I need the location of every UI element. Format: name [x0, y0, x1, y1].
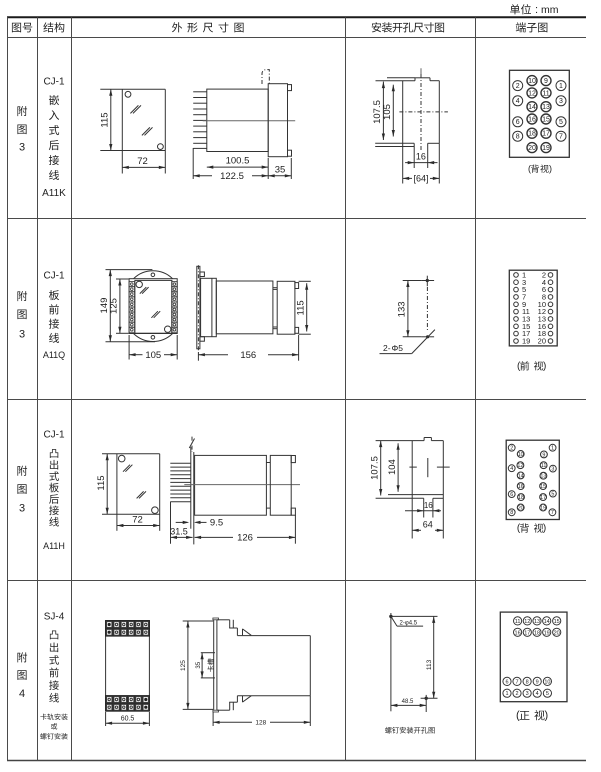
svg-text:15: 15 — [554, 619, 560, 625]
svg-text:9: 9 — [544, 78, 548, 85]
svg-text:): ) — [543, 361, 546, 372]
svg-text:9: 9 — [542, 452, 545, 458]
svg-text:CJ-1: CJ-1 — [43, 430, 65, 441]
svg-text:4: 4 — [516, 98, 520, 105]
svg-text:(: ( — [517, 361, 521, 372]
svg-text:6: 6 — [505, 679, 508, 685]
svg-text:8: 8 — [526, 679, 529, 685]
svg-text:125: 125 — [180, 660, 187, 671]
svg-text:20: 20 — [538, 337, 546, 346]
svg-text:15: 15 — [542, 116, 550, 123]
svg-text:): ) — [549, 164, 552, 174]
svg-text:105: 105 — [382, 104, 393, 120]
svg-text:126: 126 — [237, 533, 253, 544]
svg-text:17: 17 — [524, 630, 530, 636]
svg-text:7: 7 — [515, 679, 518, 685]
svg-text:5: 5 — [551, 492, 554, 498]
svg-text:19: 19 — [540, 505, 546, 511]
svg-text:15: 15 — [540, 484, 546, 490]
svg-text:): ) — [544, 710, 548, 722]
svg-text:48.5: 48.5 — [402, 699, 414, 705]
svg-text:107.5: 107.5 — [369, 456, 380, 480]
svg-text:1: 1 — [559, 83, 563, 90]
svg-text:9.5: 9.5 — [210, 518, 223, 529]
svg-text:113: 113 — [426, 659, 433, 670]
svg-text:4: 4 — [536, 691, 539, 697]
svg-text:CJ-1: CJ-1 — [43, 77, 65, 88]
svg-text:16: 16 — [424, 501, 433, 510]
svg-text:2: 2 — [515, 691, 518, 697]
svg-text:5: 5 — [546, 691, 549, 697]
svg-text:16: 16 — [518, 484, 524, 490]
svg-text:A11H: A11H — [43, 541, 65, 551]
svg-text:11: 11 — [541, 463, 547, 469]
svg-text:3: 3 — [19, 503, 25, 515]
svg-text:64: 64 — [423, 520, 433, 530]
svg-text:115: 115 — [295, 300, 306, 315]
svg-text:SJ-4: SJ-4 — [44, 612, 65, 623]
svg-text:10: 10 — [544, 679, 550, 685]
svg-text:16: 16 — [416, 152, 426, 162]
svg-text:3: 3 — [551, 467, 554, 473]
svg-text:35: 35 — [275, 164, 286, 175]
svg-text:18: 18 — [528, 131, 536, 138]
svg-text:133: 133 — [397, 301, 408, 317]
svg-text:115: 115 — [99, 112, 110, 127]
svg-text:19: 19 — [542, 145, 550, 152]
svg-text:2-φ4.5: 2-φ4.5 — [400, 620, 418, 626]
svg-text:14: 14 — [528, 104, 536, 111]
svg-text:16: 16 — [515, 630, 521, 636]
svg-text:A11K: A11K — [42, 188, 66, 199]
svg-text:1: 1 — [505, 691, 508, 697]
svg-text:(: ( — [528, 164, 531, 174]
svg-text:14: 14 — [518, 473, 524, 479]
svg-text:12: 12 — [528, 90, 536, 97]
svg-text:18: 18 — [534, 630, 540, 636]
svg-text:122.5: 122.5 — [220, 171, 244, 182]
svg-text:(: ( — [517, 523, 521, 534]
svg-text:mm: mm — [541, 4, 559, 16]
svg-text:5: 5 — [559, 119, 563, 126]
svg-text:128: 128 — [255, 720, 266, 727]
svg-text:8: 8 — [516, 134, 520, 141]
svg-text:10: 10 — [518, 452, 524, 458]
svg-text:104: 104 — [387, 459, 398, 475]
svg-text:20: 20 — [518, 505, 524, 511]
svg-text:2: 2 — [516, 83, 520, 90]
svg-text:7: 7 — [559, 134, 563, 141]
svg-text:10: 10 — [528, 78, 536, 85]
svg-text:72: 72 — [137, 156, 148, 167]
svg-text::: : — [535, 4, 538, 16]
svg-text:31.5: 31.5 — [170, 526, 188, 536]
svg-text:100.5: 100.5 — [226, 155, 250, 166]
svg-text:3: 3 — [559, 98, 563, 105]
svg-text:12: 12 — [524, 619, 530, 625]
svg-text:17: 17 — [542, 131, 550, 138]
svg-text:9: 9 — [536, 679, 539, 685]
svg-text:12: 12 — [517, 463, 523, 469]
svg-text:16: 16 — [528, 116, 536, 123]
svg-text:60.5: 60.5 — [121, 716, 135, 723]
svg-text:4: 4 — [19, 688, 25, 700]
svg-text:7: 7 — [551, 510, 554, 516]
svg-text:6: 6 — [516, 119, 520, 126]
svg-text:156: 156 — [240, 350, 256, 361]
svg-text:17: 17 — [540, 495, 546, 501]
svg-text:3: 3 — [19, 329, 25, 341]
svg-text:CJ-1: CJ-1 — [43, 270, 65, 281]
svg-text:13: 13 — [540, 474, 546, 480]
svg-text:11: 11 — [515, 619, 521, 625]
svg-text:3: 3 — [526, 691, 529, 697]
svg-text:115: 115 — [96, 475, 107, 490]
svg-text:): ) — [543, 523, 546, 534]
svg-text:13: 13 — [542, 104, 550, 111]
svg-text:18: 18 — [518, 495, 524, 501]
svg-text:13: 13 — [534, 619, 540, 625]
svg-text:3: 3 — [19, 142, 25, 154]
svg-text:20: 20 — [528, 145, 536, 152]
svg-text:4: 4 — [510, 466, 513, 472]
svg-text:[64]: [64] — [413, 174, 428, 184]
svg-text:8: 8 — [510, 510, 513, 516]
svg-text:19: 19 — [544, 630, 550, 636]
svg-text:125: 125 — [109, 298, 120, 314]
svg-text:35: 35 — [196, 661, 202, 668]
svg-text:2-: 2- — [383, 343, 391, 353]
svg-text:20: 20 — [554, 630, 560, 636]
svg-text:Φ5: Φ5 — [392, 343, 404, 353]
svg-text:1: 1 — [551, 446, 554, 452]
svg-text:A11Q: A11Q — [43, 350, 65, 360]
svg-text:(: ( — [516, 710, 520, 722]
svg-text:2: 2 — [510, 446, 513, 452]
svg-text:14: 14 — [544, 619, 550, 625]
svg-text:72: 72 — [132, 514, 143, 525]
svg-text:105: 105 — [145, 350, 161, 361]
svg-text:19: 19 — [522, 337, 530, 346]
svg-text:6: 6 — [510, 492, 513, 498]
svg-text:11: 11 — [542, 90, 549, 97]
